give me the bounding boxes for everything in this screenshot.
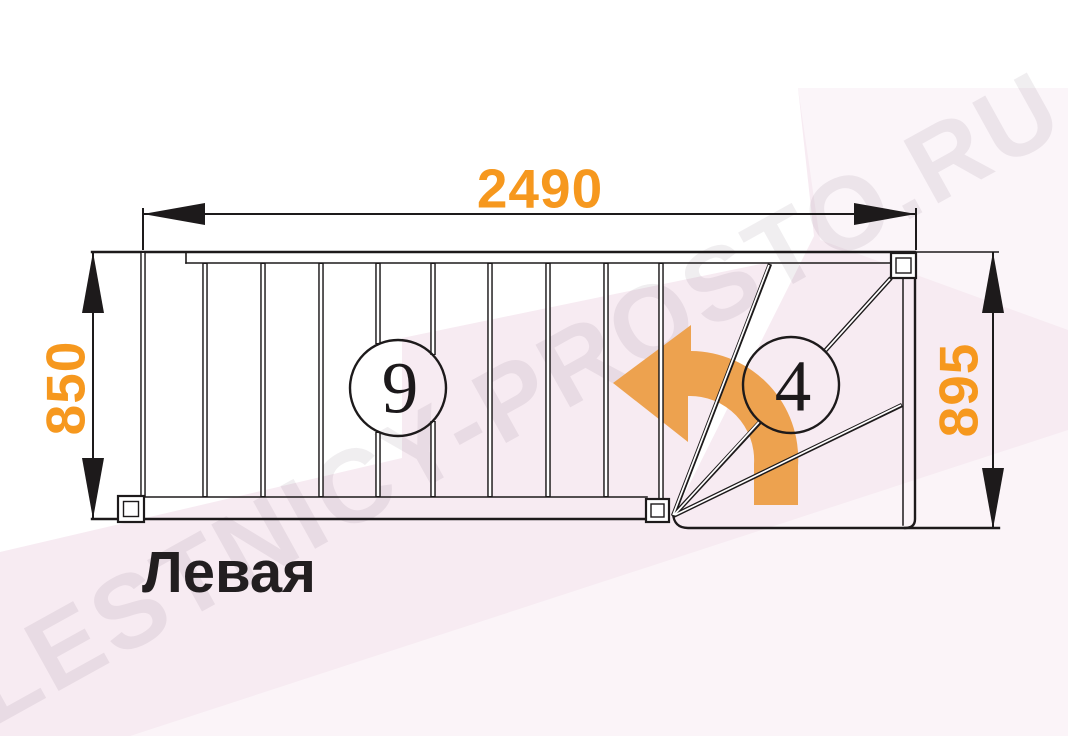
winder-steps-count: 4 — [775, 350, 812, 423]
dimension-right-height: 895 — [932, 343, 987, 438]
post-middle — [646, 499, 669, 522]
stair-drawing — [0, 0, 1068, 736]
straight-steps-count: 9 — [382, 352, 419, 425]
dimension-left-height: 850 — [39, 341, 94, 436]
stair-plan-diagram: LESTNICY-PROSTO.RU — [0, 0, 1068, 736]
post-top-right — [891, 253, 916, 278]
dimension-top-width: 2490 — [477, 162, 603, 217]
plan-title: Левая — [142, 544, 316, 602]
post-bottom-left — [118, 496, 144, 522]
